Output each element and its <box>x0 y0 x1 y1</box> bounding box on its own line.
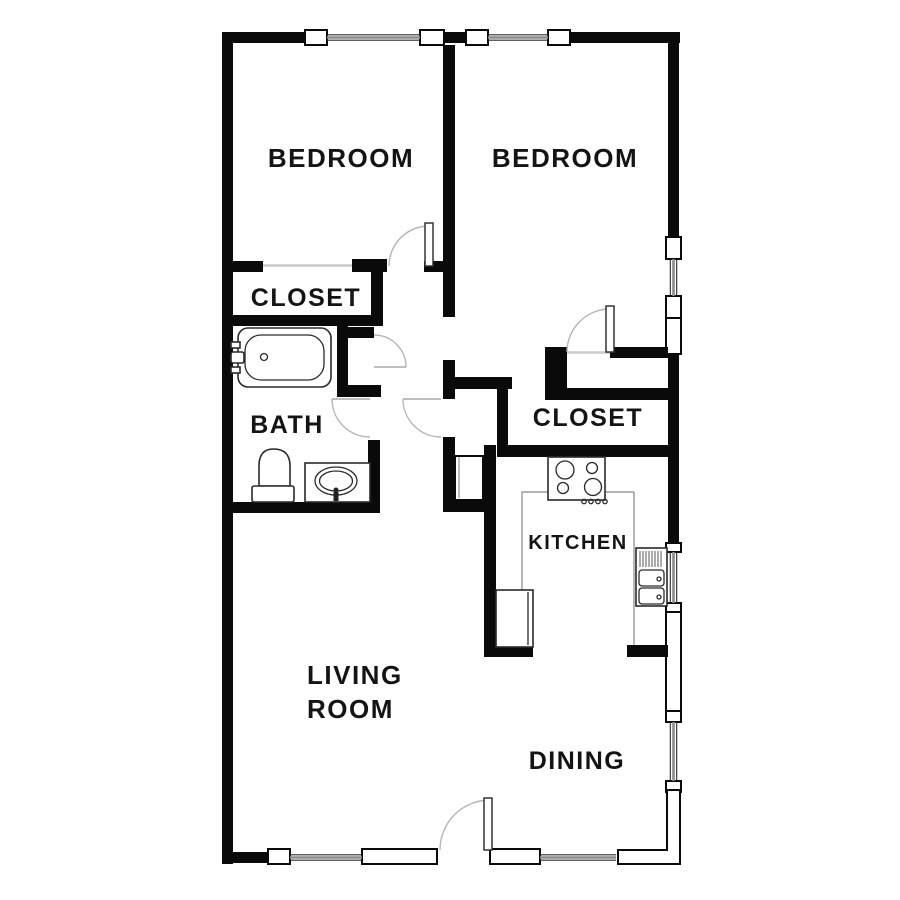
kitchen-stove-icon <box>548 457 607 504</box>
room-label-dining: DINING <box>529 747 626 775</box>
kitchen-counter <box>522 492 634 645</box>
room-label-living-line1: LIVING <box>307 660 403 690</box>
room-label-closet-right: CLOSET <box>533 404 643 432</box>
window-bedroom-right-top <box>488 35 548 40</box>
room-label-bedroom-right: BEDROOM <box>492 143 638 173</box>
room-label-bath: BATH <box>250 411 324 439</box>
door-hall-living <box>403 399 441 437</box>
room-label-living-line2: ROOM <box>307 694 394 724</box>
door-front-entry <box>440 798 492 850</box>
kitchen-sink-icon <box>636 548 667 606</box>
bathtub-icon <box>231 328 331 387</box>
bathroom-sink-icon <box>305 463 370 502</box>
door-bedroom-right <box>567 306 614 353</box>
refrigerator-icon <box>496 590 533 647</box>
door-linen-nook <box>374 335 406 367</box>
door-bath <box>332 399 370 437</box>
window-bedroom-right-side <box>670 259 676 296</box>
window-living-room <box>290 855 362 860</box>
floor-plan-page: BEDROOM BEDROOM CLOSET BATH CLOSET KITCH… <box>0 0 900 900</box>
window-kitchen <box>670 552 676 603</box>
window-bedroom-left <box>327 35 420 40</box>
door-bedroom-left <box>389 223 433 266</box>
room-label-kitchen: KITCHEN <box>528 532 627 554</box>
toilet-icon <box>252 449 294 502</box>
window-dining-side <box>670 722 676 781</box>
room-label-closet-left: CLOSET <box>251 284 361 312</box>
kitchen-entry-opening <box>455 456 483 500</box>
room-label-bedroom-left: BEDROOM <box>268 143 414 173</box>
window-dining-bottom <box>540 855 616 860</box>
floor-plan-svg: BEDROOM BEDROOM CLOSET BATH CLOSET KITCH… <box>0 0 900 900</box>
